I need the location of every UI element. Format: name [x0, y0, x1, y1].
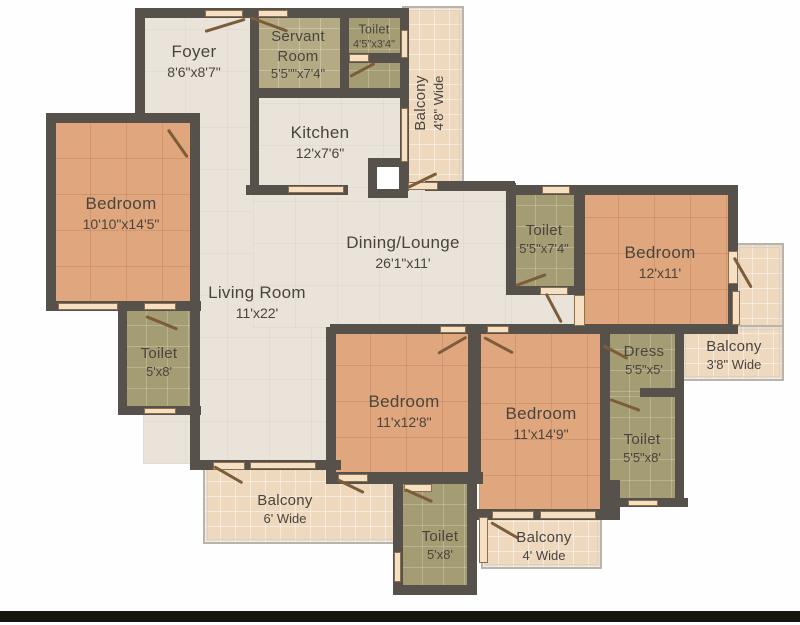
room-name: Living Room — [208, 282, 306, 304]
room-dims: 5'x8' — [141, 363, 178, 380]
wall-segment — [118, 308, 127, 415]
window-sill — [144, 408, 176, 414]
room-name: Balcony — [706, 337, 761, 357]
room-label-living-room: Living Room 11'x22' — [208, 282, 306, 322]
room-label-dress: Dress 5'5"x5' — [624, 342, 665, 378]
room-label-servant-room: Servant Room 5'5""x7'4" — [250, 27, 346, 83]
wall-segment — [425, 181, 515, 191]
wall-segment — [46, 113, 198, 123]
room-dims: 26'1"x11' — [346, 254, 460, 272]
door-threshold — [728, 251, 738, 284]
room-label-bedroom-bottom-left: Bedroom 11'x12'8" — [368, 391, 439, 431]
room-label-bedroom-left: Bedroom 10'10"x14'5" — [83, 193, 160, 233]
window-sill — [540, 511, 596, 519]
room-dims: 4'5"x3'4" — [353, 38, 395, 52]
door-threshold — [574, 295, 585, 326]
room-dims: 5'5"x5' — [624, 361, 665, 378]
room-dims: 5'x8' — [422, 546, 459, 563]
wall-segment — [46, 113, 56, 311]
window-sill — [542, 186, 570, 194]
room-name: Bedroom — [83, 193, 160, 215]
room-name: Kitchen — [291, 122, 350, 144]
room-name: Foyer — [167, 41, 220, 63]
door-threshold — [205, 10, 243, 17]
door-threshold — [440, 326, 466, 333]
room-name: Dining/Lounge — [346, 232, 460, 254]
room-label-toilet-left: Toilet 5'x8' — [141, 344, 178, 380]
wall-segment — [135, 8, 145, 120]
room-name: Servant Room — [250, 27, 346, 66]
wall-segment — [467, 472, 477, 595]
window-sill — [394, 552, 401, 582]
room-name: Dress — [624, 342, 665, 362]
room-dims: 4' Wide — [516, 547, 571, 564]
balcony-pillar — [479, 517, 488, 563]
window-sill — [401, 30, 408, 58]
wall-segment — [468, 327, 481, 484]
room-dims: 12'x7'6" — [291, 144, 350, 162]
door-threshold — [628, 500, 658, 506]
room-dims: 8'6"x8'7" — [167, 63, 220, 81]
floor-passage — [511, 290, 577, 328]
window-sill — [250, 462, 316, 469]
room-dims: 11'x22' — [208, 304, 306, 322]
room-dims: 11'x12'8" — [368, 413, 439, 431]
room-name: Toilet — [353, 22, 395, 38]
door-threshold — [258, 10, 288, 17]
room-dims: 3'8" Wide — [706, 356, 761, 373]
room-dims: 6' Wide — [257, 510, 312, 527]
wall-segment — [675, 327, 684, 507]
room-dims: 5'5""x7'4" — [250, 66, 346, 83]
room-dims: 10'10"x14'5" — [83, 215, 160, 233]
window-sill — [492, 511, 534, 519]
door-threshold — [487, 326, 509, 333]
room-label-dining-lounge: Dining/Lounge 26'1"x11' — [346, 232, 460, 272]
room-label-foyer: Foyer 8'6"x8'7" — [167, 41, 220, 81]
room-name: Balcony — [516, 528, 571, 548]
duct-opening — [377, 167, 399, 189]
wall-segment — [326, 327, 336, 484]
room-label-bedroom-bottom-right: Bedroom 11'x14'9" — [505, 403, 576, 443]
room-dims: 5'5"x7'4" — [519, 240, 569, 257]
room-name: Bedroom — [505, 403, 576, 425]
room-label-balcony-right: Balcony 3'8" Wide — [706, 337, 761, 373]
room-dims: 4'8" Wide — [430, 75, 447, 130]
room-label-balcony-top-right: Balcony 4'8" Wide — [411, 75, 447, 130]
wall-segment — [393, 585, 477, 595]
room-name: Toilet — [141, 344, 178, 364]
room-label-balcony-bottom-left: Balcony 6' Wide — [257, 491, 312, 527]
room-label-kitchen: Kitchen 12'x7'6" — [291, 122, 350, 162]
window-sill — [288, 186, 344, 193]
room-label-toilet-mid: Toilet 5'5"x7'4" — [519, 221, 569, 257]
room-name: Toilet — [519, 221, 569, 241]
window-sill — [732, 291, 740, 325]
room-dims: 11'x14'9" — [505, 425, 576, 443]
room-label-toilet-right: Toilet 5'5"x8' — [623, 430, 661, 466]
wall-segment — [506, 183, 516, 295]
room-name: Balcony — [257, 491, 312, 511]
window-sill — [401, 108, 408, 162]
room-label-toilet-bottom: Toilet 5'x8' — [422, 527, 459, 563]
wall-segment — [254, 88, 409, 98]
room-label-toilet-top: Toilet 4'5"x3'4" — [353, 22, 395, 53]
wall-segment — [190, 113, 200, 315]
room-name: Toilet — [623, 430, 661, 450]
room-dims: 5'5"x8' — [623, 449, 661, 466]
room-name: Balcony — [411, 75, 431, 130]
door-threshold — [349, 54, 369, 62]
room-label-balcony-bottom-right: Balcony 4' Wide — [516, 528, 571, 564]
room-name: Bedroom — [624, 242, 695, 264]
room-name: Bedroom — [368, 391, 439, 413]
room-dims: 12'x11' — [624, 264, 695, 282]
room-name: Toilet — [422, 527, 459, 547]
wall-segment — [600, 480, 620, 510]
wall-segment — [190, 310, 200, 470]
door-threshold — [144, 303, 176, 310]
room-label-bedroom-right: Bedroom 12'x11' — [624, 242, 695, 282]
window-sill — [58, 303, 118, 310]
footer-bar — [0, 611, 800, 622]
floor-plan: Foyer 8'6"x8'7" Servant Room 5'5""x7'4" … — [0, 0, 800, 625]
